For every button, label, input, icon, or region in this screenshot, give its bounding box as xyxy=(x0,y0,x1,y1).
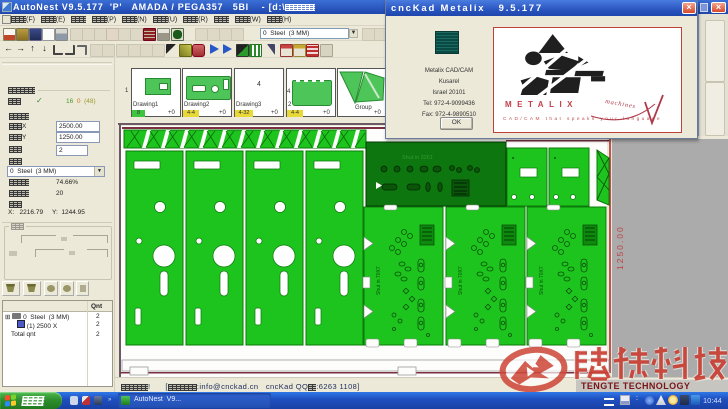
svg-text:machines: machines xyxy=(605,98,637,110)
svg-text:Shut in 3261: Shut in 3261 xyxy=(402,155,433,161)
